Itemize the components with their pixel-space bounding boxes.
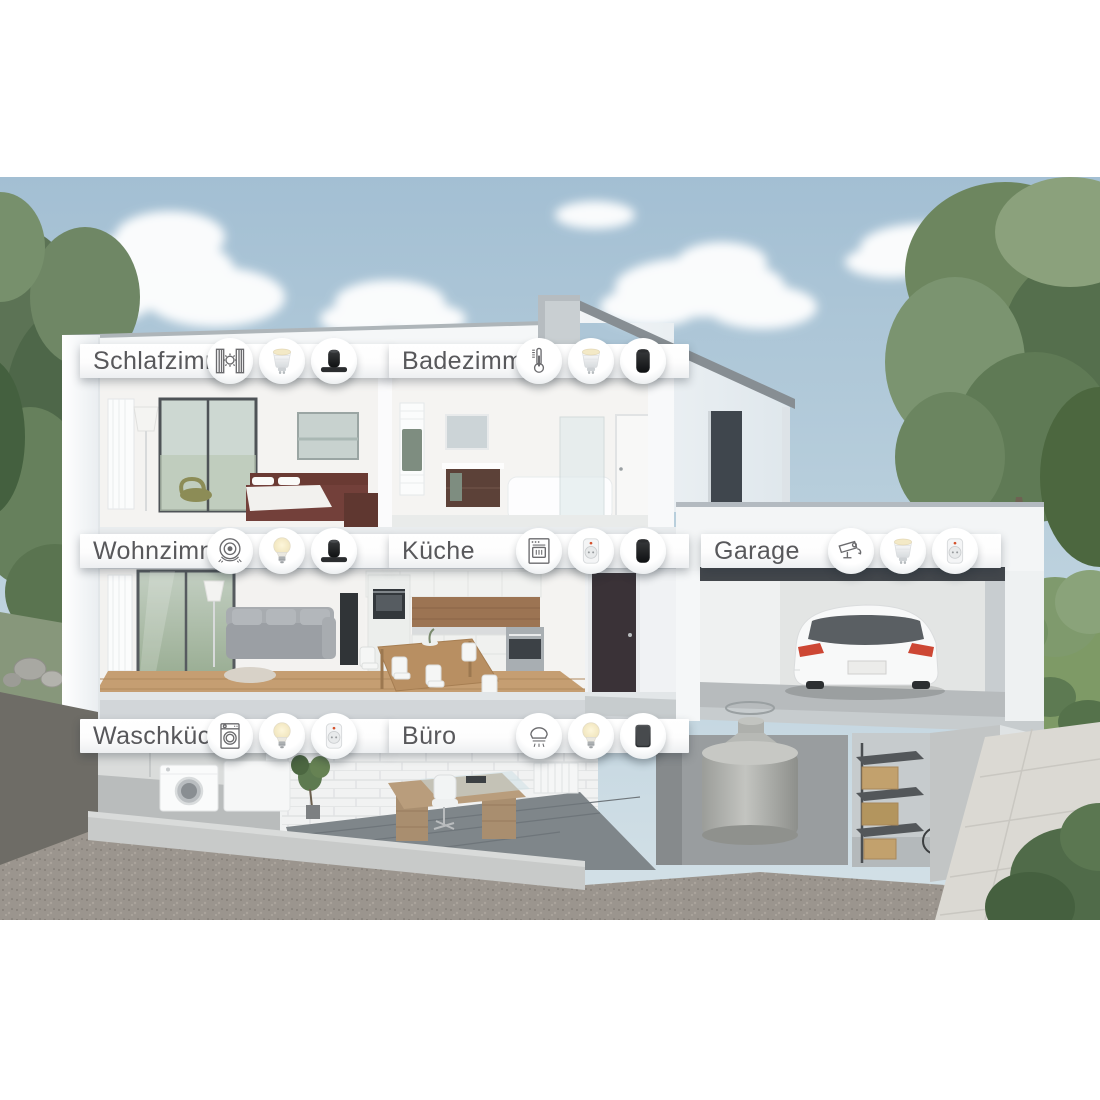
spot-bulb-icon bbox=[568, 338, 614, 384]
smoke-detector-icon bbox=[516, 713, 562, 759]
bulb-icon bbox=[568, 713, 614, 759]
blinds-icon bbox=[207, 338, 253, 384]
smart-plug-icon bbox=[568, 528, 614, 574]
smart-home-cutaway-illustration: SchlafzimmerBadezimmerWohnzimmerKücheGar… bbox=[0, 0, 1100, 1100]
room-badge-badezimmer: Badezimmer bbox=[389, 344, 689, 390]
speaker-soundbar-icon bbox=[311, 528, 357, 574]
washing-machine-icon bbox=[207, 713, 253, 759]
shower-glass bbox=[560, 417, 604, 517]
smart-plug-icon bbox=[932, 528, 978, 574]
camera-icon bbox=[828, 528, 874, 574]
upper-volume-window bbox=[708, 411, 742, 509]
thermostat-icon bbox=[516, 338, 562, 384]
utility-box bbox=[224, 761, 290, 811]
spot-bulb-icon bbox=[259, 338, 305, 384]
bathroom-scene bbox=[392, 377, 650, 529]
bedroom-picture bbox=[298, 413, 358, 459]
front-door bbox=[592, 573, 636, 693]
towel bbox=[402, 429, 422, 471]
robot-vacuum-icon bbox=[207, 528, 253, 574]
room-badge-wohnzimmer: Wohnzimmer bbox=[80, 534, 390, 580]
bed bbox=[246, 485, 332, 511]
smart-plug-icon bbox=[311, 713, 357, 759]
speaker-icon bbox=[620, 528, 666, 574]
bulb-icon bbox=[259, 713, 305, 759]
sofa bbox=[226, 607, 336, 659]
tv bbox=[340, 593, 358, 665]
cut-wall-left bbox=[62, 335, 100, 727]
room-badge-kueche: Küche bbox=[389, 534, 689, 580]
room-label: Küche bbox=[389, 537, 475, 566]
oven-icon bbox=[516, 528, 562, 574]
room-badge-buero: Büro bbox=[389, 719, 689, 765]
room-badge-garage: Garage bbox=[701, 534, 1001, 580]
speaker-soundbar-icon bbox=[311, 338, 357, 384]
bulb-icon bbox=[259, 528, 305, 574]
washing-machine bbox=[160, 765, 218, 811]
bathroom-door bbox=[616, 415, 650, 519]
spot-bulb-icon bbox=[880, 528, 926, 574]
room-label: Büro bbox=[389, 722, 456, 751]
room-badge-waschkueche: Waschküche bbox=[80, 719, 390, 765]
backsplash bbox=[412, 597, 540, 629]
car bbox=[785, 605, 945, 700]
room-badge-schlafzimmer: Schlafzimmer bbox=[80, 344, 392, 390]
speaker-icon bbox=[620, 338, 666, 384]
mirror bbox=[446, 415, 488, 449]
speaker-square-icon bbox=[620, 713, 666, 759]
room-label: Garage bbox=[701, 537, 800, 566]
